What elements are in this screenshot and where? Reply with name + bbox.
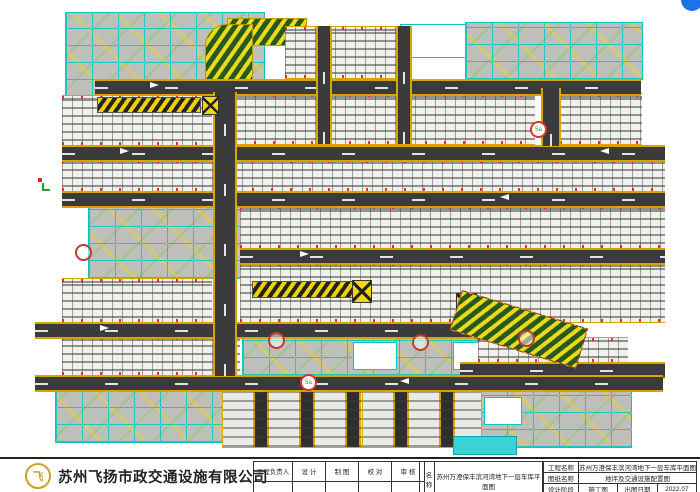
lane-arrow-icon bbox=[400, 378, 409, 384]
drive-lane bbox=[35, 375, 663, 392]
stair-symbol bbox=[518, 330, 535, 347]
lane-arrow-icon bbox=[120, 148, 129, 154]
stair-symbol bbox=[268, 332, 285, 349]
sig-cell-empty bbox=[326, 481, 359, 492]
company-logo-icon: 飞 bbox=[25, 463, 51, 489]
sig-header: 设 计 bbox=[293, 462, 326, 482]
zone-marker-label: 5a bbox=[305, 380, 312, 386]
zone-marker: 5a bbox=[530, 121, 547, 138]
room-box bbox=[353, 342, 397, 370]
parking-bays-bottom bbox=[222, 390, 364, 448]
parking-row bbox=[62, 159, 665, 192]
drawing-name: 苏州万澄保丰滨河湾地下一层车库平面图 bbox=[435, 462, 543, 492]
rooms-bottom-left bbox=[55, 390, 223, 443]
drive-lane-vertical bbox=[316, 26, 332, 144]
hatched-strip bbox=[252, 281, 354, 298]
drive-lane-vertical bbox=[213, 92, 237, 376]
info-value: 苏州万澄保丰滨河湾地下一层车库平面图 bbox=[579, 462, 697, 473]
lane-arrow-icon bbox=[500, 194, 509, 200]
sig-cell-empty bbox=[293, 481, 326, 492]
parking-row bbox=[560, 93, 642, 145]
no-parking-box bbox=[202, 96, 219, 115]
garage-floor-plan: 5a 5a bbox=[0, 0, 700, 457]
info-label: 设计阶段 bbox=[544, 484, 579, 492]
water-tank bbox=[453, 436, 517, 455]
parking-row bbox=[235, 93, 535, 145]
company-name: 苏州飞扬市政交通设施有限公司 bbox=[58, 466, 268, 487]
info-value: 2022.07 bbox=[657, 484, 696, 492]
datum-mark-icon bbox=[42, 183, 50, 191]
no-parking-box bbox=[352, 280, 372, 303]
sig-cell-empty bbox=[254, 481, 293, 492]
lane-arrow-icon bbox=[600, 148, 609, 154]
rooms-top-right bbox=[465, 22, 643, 80]
sig-header: 校 对 bbox=[359, 462, 392, 482]
entrance-ramp-top-curve bbox=[205, 24, 253, 82]
datum-mark-icon bbox=[38, 178, 42, 182]
parking-row bbox=[285, 26, 397, 79]
lane-arrow-icon bbox=[300, 251, 309, 257]
zone-marker: 5a bbox=[300, 374, 317, 391]
info-label: 图纸名称 bbox=[544, 473, 579, 484]
drawing-name-table: 名称 苏州万澄保丰滨河湾地下一层车库平面图 bbox=[419, 461, 543, 492]
parking-row bbox=[62, 278, 212, 323]
info-value: 地坪及交通设施配置图 bbox=[579, 473, 697, 484]
info-label: 工程名称 bbox=[544, 462, 579, 473]
drive-lane-vertical bbox=[396, 26, 412, 144]
sig-cell-empty bbox=[359, 481, 392, 492]
title-block: 飞 苏州飞扬市政交通设施有限公司 工程负责人 设 计 制 图 校 对 审 核 bbox=[0, 457, 700, 492]
info-label: 出图日期 bbox=[618, 484, 657, 492]
name-label: 名称 bbox=[420, 462, 435, 492]
project-info-table: 工程名称 苏州万澄保丰滨河湾地下一层车库平面图 图纸名称 地坪及交通设施配置图 … bbox=[543, 461, 697, 492]
drive-lane bbox=[62, 191, 665, 208]
logo-glyph: 飞 bbox=[33, 468, 44, 484]
parking-row bbox=[240, 205, 665, 249]
drive-lane bbox=[62, 145, 665, 162]
sig-header: 工程负责人 bbox=[254, 462, 293, 482]
signature-table: 工程负责人 设 计 制 图 校 对 审 核 bbox=[253, 461, 425, 492]
sig-header: 制 图 bbox=[326, 462, 359, 482]
info-value: 施工图 bbox=[579, 484, 618, 492]
drive-lane-vertical bbox=[541, 88, 561, 146]
company-block: 飞 苏州飞扬市政交通设施有限公司 bbox=[25, 463, 251, 489]
lane-arrow-icon bbox=[100, 325, 109, 331]
drawing-sheet: 5a 5a 飞 苏州飞扬市政交通设施有限公司 工程负责人 设 计 制 图 校 对 bbox=[0, 0, 700, 492]
stair-symbol bbox=[412, 334, 429, 351]
hatched-strip bbox=[97, 97, 201, 113]
zone-marker-label: 5a bbox=[535, 127, 542, 133]
room-box bbox=[484, 397, 522, 425]
lane-arrow-icon bbox=[150, 82, 159, 88]
stair-symbol bbox=[75, 244, 92, 261]
